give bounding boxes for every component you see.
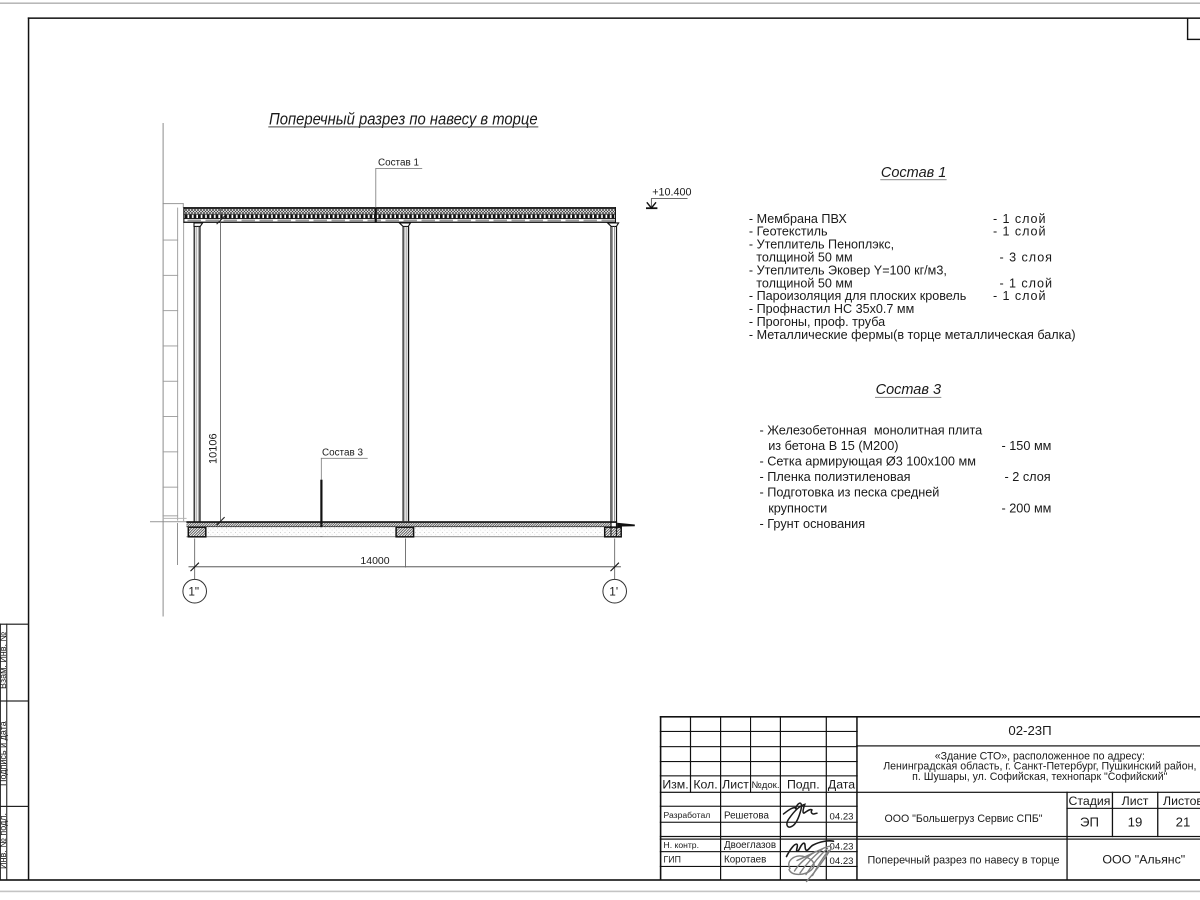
- svg-text:Разработал: Разработал: [664, 810, 711, 820]
- svg-text:21: 21: [1176, 815, 1191, 830]
- svg-text:Подпись и дата: Подпись и дата: [0, 721, 8, 786]
- svg-text:Дата: Дата: [828, 778, 855, 792]
- svg-text:- Профнастил НС 35х0.7 мм: - Профнастил НС 35х0.7 мм: [749, 302, 914, 316]
- svg-text:- Утеплитель Пеноплэкс,: - Утеплитель Пеноплэкс,: [749, 238, 894, 252]
- svg-text:п. Шушары, ул. Софийская, техн: п. Шушары, ул. Софийская, технопарк "Соф…: [912, 771, 1167, 783]
- svg-text:- Сетка армирующая Ø3 100х100: - Сетка армирующая Ø3 100х100 мм: [760, 455, 976, 469]
- svg-text:04.23: 04.23: [830, 841, 854, 852]
- svg-text:- 1 слой: - 1 слой: [993, 289, 1046, 303]
- svg-text:- Пленка полиэтиленовая: - Пленка полиэтиленовая: [760, 470, 911, 484]
- svg-text:04.23: 04.23: [830, 856, 854, 867]
- svg-text:- Железобетонная монолитная п: - Железобетонная монолитная плита: [760, 423, 984, 437]
- svg-text:крупности: крупности: [768, 501, 827, 515]
- svg-text:Листов: Листов: [1163, 794, 1200, 808]
- svg-text:- 1 слой: - 1 слой: [993, 212, 1046, 226]
- svg-text:- 200 мм: - 200 мм: [1002, 501, 1052, 515]
- svg-text:Лист: Лист: [722, 778, 749, 792]
- svg-text:№док.: №док.: [751, 780, 779, 791]
- svg-text:Состав 3: Состав 3: [322, 448, 363, 459]
- svg-text:толщиной 50 мм: толщиной 50 мм: [756, 251, 852, 265]
- svg-text:Кол.: Кол.: [693, 778, 717, 792]
- svg-text:- 3 слоя: - 3 слоя: [1000, 251, 1053, 265]
- svg-text:Двоеглазов: Двоеглазов: [724, 840, 776, 851]
- svg-text:1": 1": [188, 584, 199, 598]
- svg-text:ЭП: ЭП: [1080, 815, 1099, 830]
- svg-text:- Пароизоляция для плоских кро: - Пароизоляция для плоских кровель: [749, 289, 967, 303]
- svg-text:- Утеплитель Эковер Y=100 кг/м: - Утеплитель Эковер Y=100 кг/м3,: [749, 263, 947, 277]
- svg-text:Состав 3: Состав 3: [876, 382, 941, 398]
- svg-text:04.23: 04.23: [830, 812, 854, 823]
- svg-text:10106: 10106: [208, 433, 220, 464]
- svg-text:- 1 слой: - 1 слой: [993, 225, 1046, 239]
- svg-text:Инв. № подл.: Инв. № подл.: [0, 813, 8, 869]
- svg-text:Коротаев: Коротаев: [724, 855, 766, 866]
- svg-text:Стадия: Стадия: [1069, 794, 1111, 808]
- svg-text:Состав 1: Состав 1: [378, 158, 419, 169]
- svg-text:толщиной 50 мм: толщиной 50 мм: [756, 276, 852, 290]
- svg-text:- Металлические фермы(в торце: - Металлические фермы(в торце металличес…: [749, 328, 1076, 342]
- svg-text:- Мембрана ПВХ: - Мембрана ПВХ: [749, 212, 847, 226]
- svg-text:ООО "Альянс": ООО "Альянс": [1102, 853, 1185, 867]
- svg-text:Подп.: Подп.: [787, 778, 820, 792]
- svg-text:- Геотекстиль: - Геотекстиль: [749, 225, 828, 239]
- svg-text:- 1 слой: - 1 слой: [1000, 276, 1053, 290]
- svg-text:Взам. Инв. №: Взам. Инв. №: [0, 631, 8, 689]
- svg-text:Н. контр.: Н. контр.: [664, 840, 699, 850]
- svg-text:Состав 1: Состав 1: [881, 165, 946, 181]
- svg-text:+10.400: +10.400: [652, 186, 691, 198]
- svg-text:14000: 14000: [360, 555, 389, 567]
- svg-text:02-23П: 02-23П: [1008, 723, 1051, 738]
- svg-text:Поперечный разрез по навесу в: Поперечный разрез по навесу в торце: [867, 854, 1059, 866]
- svg-text:- Грунт основания: - Грунт основания: [760, 517, 866, 531]
- svg-text:Решетова: Решетова: [724, 810, 769, 821]
- svg-text:из бетона В 15 (М200): из бетона В 15 (М200): [768, 439, 898, 453]
- svg-text:Поперечный разрез по навесу в: Поперечный разрез по навесу в торце: [269, 110, 538, 129]
- svg-text:- Прогоны, проф. труба: - Прогоны, проф. труба: [749, 315, 885, 329]
- svg-text:19: 19: [1128, 815, 1143, 830]
- svg-text:1': 1': [609, 584, 618, 598]
- svg-text:Изм.: Изм.: [662, 778, 688, 792]
- svg-text:Лист: Лист: [1122, 794, 1149, 808]
- svg-text:ООО "Большегруз Сервис СПБ": ООО "Большегруз Сервис СПБ": [884, 813, 1042, 825]
- svg-text:- Подготовка из песка средней: - Подготовка из песка средней: [760, 486, 940, 500]
- svg-text:- 150 мм: - 150 мм: [1002, 439, 1052, 453]
- svg-text:- 2 слоя: - 2 слоя: [1005, 470, 1051, 484]
- svg-text:ГИП: ГИП: [664, 855, 681, 865]
